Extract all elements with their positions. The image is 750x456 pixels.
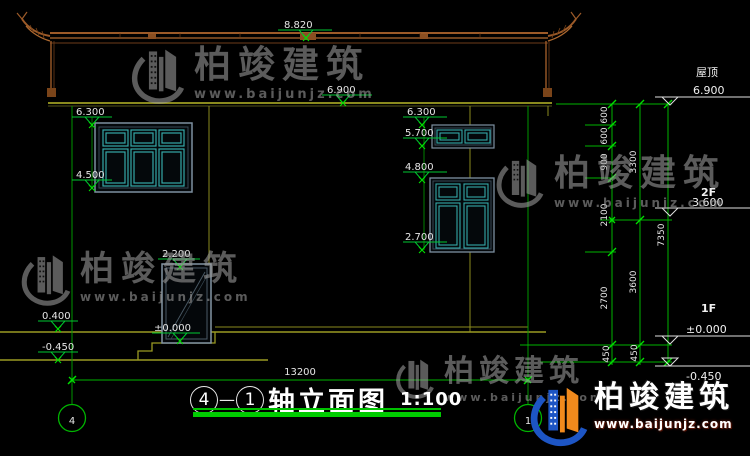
watermark-url: www.baijunjz.com	[194, 87, 375, 102]
roof-label: 屋顶	[696, 66, 718, 79]
win-mid-upper-bottom-elevation: 5.700	[405, 128, 434, 139]
axis-number-left: 4	[69, 416, 75, 427]
f1-level: ±0.000	[686, 323, 727, 336]
brand-logo-name: 柏竣建筑	[594, 383, 734, 413]
f1-label: 1F	[701, 302, 716, 315]
brand-logo-icon	[530, 383, 588, 447]
watermark-url: www.baijunjz.com	[554, 196, 726, 210]
right-eave-curl	[548, 12, 581, 41]
watermark-url: www.baijunjz.com	[80, 290, 251, 304]
title-underline-thick	[193, 412, 441, 417]
right-fascia	[543, 41, 552, 97]
win-left-top-elevation: 6.300	[76, 107, 105, 118]
title-axis-joiner: —	[219, 390, 235, 409]
win-left-bottom-elevation: 4.500	[76, 170, 105, 181]
drawing-scale: 1:100	[400, 389, 462, 410]
svg-text:2700: 2700	[600, 286, 610, 309]
window-left	[95, 123, 192, 192]
svg-text:600: 600	[600, 127, 610, 144]
watermark-brand: 柏竣建筑	[554, 156, 726, 192]
right-overall-dim: 7350	[657, 223, 667, 246]
brand-logo-url: www.baijunjz.com	[594, 417, 734, 431]
left-fascia	[47, 41, 56, 97]
title-underline-thin	[193, 408, 441, 410]
door-floor-elevation: ±0.000	[154, 323, 191, 334]
cad-elevation-drawing: 4 1 13200	[0, 0, 750, 456]
overall-width-dim: 13200	[284, 367, 316, 378]
title-axis-to: 1	[245, 390, 256, 410]
title-axis-from: 4	[199, 390, 210, 410]
watermark-brand: 柏竣建筑	[80, 252, 251, 286]
watermark-left: 柏竣建筑 www.baijunjz.com	[20, 252, 251, 306]
win-mid-lower-top-elevation: 4.800	[405, 162, 434, 173]
right-level-markers: 屋顶 6.900 2F 3.600 1F ±0.000 -0.450	[655, 66, 750, 383]
left-eave-curl	[17, 12, 50, 41]
ridge-elevation: 8.820	[284, 20, 313, 31]
watermark-top: 柏竣建筑 www.baijunjz.com	[130, 46, 375, 104]
brand-logo: 柏竣建筑 www.baijunjz.com	[530, 383, 734, 447]
roof-level: 6.900	[693, 84, 725, 97]
win-mid-lower-bottom-elevation: 2.700	[405, 232, 434, 243]
watermark-right: 柏竣建筑 www.baijunjz.com	[494, 156, 726, 210]
watermark-logo-icon	[494, 156, 546, 208]
watermark-logo-icon	[20, 252, 72, 306]
ground-elevation: -0.450	[42, 342, 74, 353]
plinth-elevation: 0.400	[42, 311, 71, 322]
svg-text:600: 600	[600, 106, 610, 123]
watermark-brand: 柏竣建筑	[194, 46, 375, 83]
right-inner-chain-values: 600 600 900 2100 2700 450	[600, 106, 612, 362]
win-mid-upper-top-elevation: 6.300	[407, 107, 436, 118]
watermark-logo-icon	[130, 46, 186, 104]
svg-text:450: 450	[630, 344, 640, 361]
window-mid-lower	[430, 178, 494, 252]
svg-text:3600: 3600	[629, 270, 639, 293]
window-mid-upper	[432, 125, 494, 148]
